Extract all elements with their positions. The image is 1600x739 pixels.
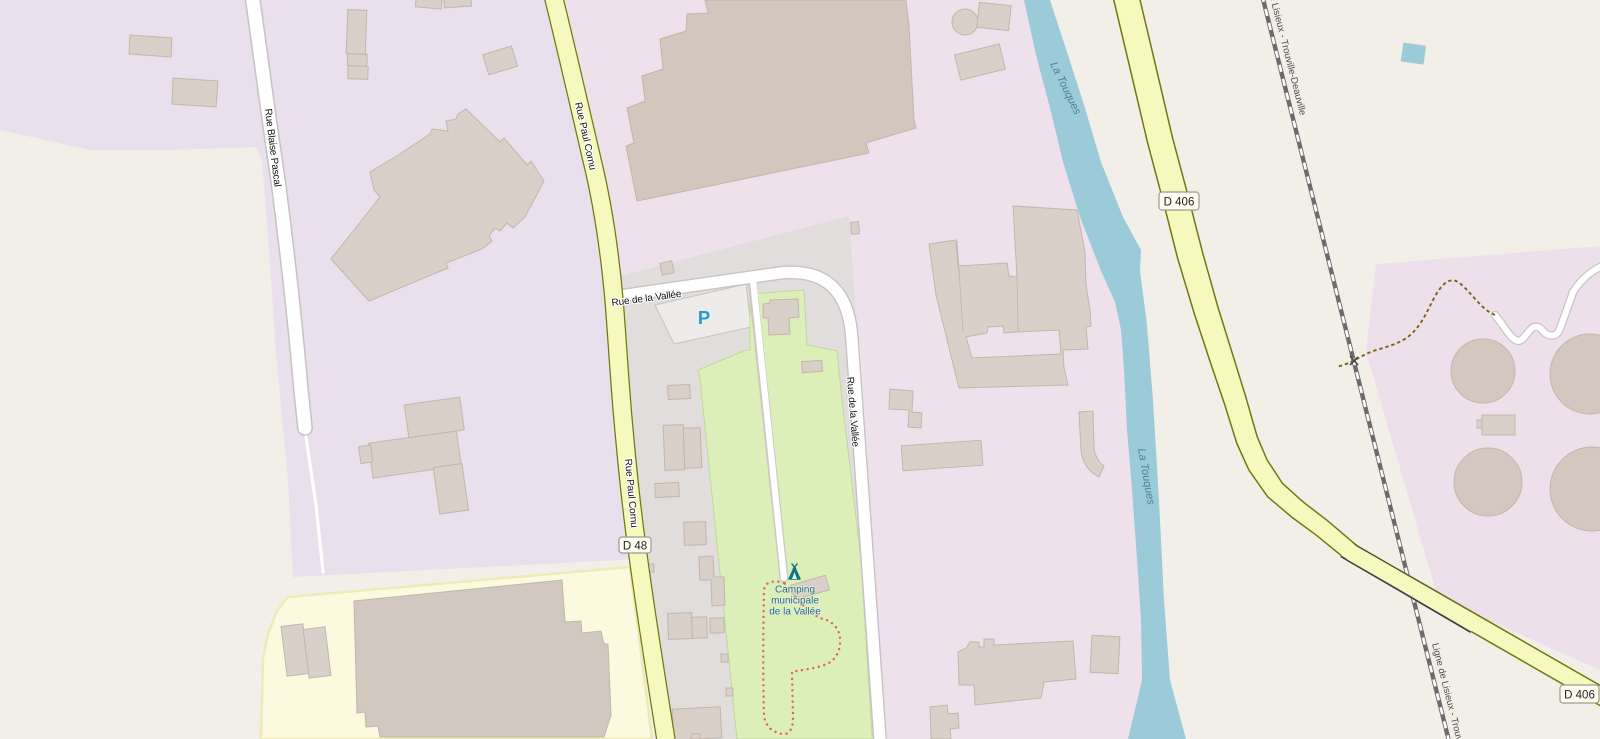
svg-text:D 406: D 406: [1164, 197, 1195, 209]
svg-text:D 406: D 406: [1564, 690, 1595, 702]
svg-text:de la Vallée: de la Vallée: [769, 607, 821, 618]
svg-text:Camping: Camping: [775, 585, 815, 596]
svg-text:municipale: municipale: [771, 596, 819, 607]
svg-text:P: P: [698, 307, 710, 328]
svg-text:D 48: D 48: [623, 541, 647, 553]
